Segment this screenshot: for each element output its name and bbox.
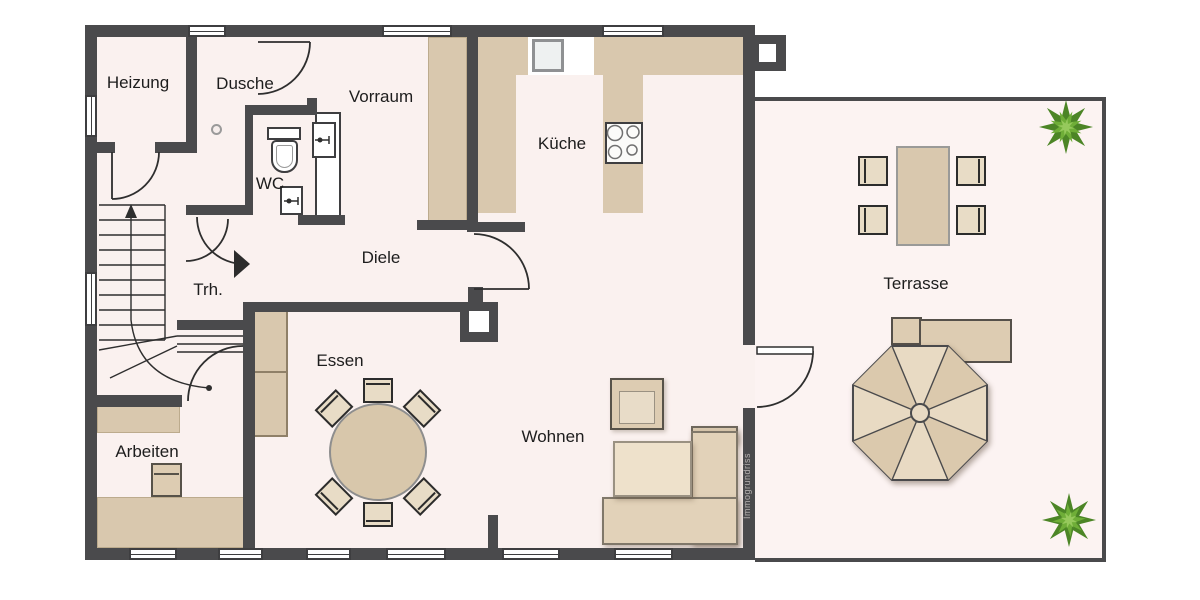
- terrace-chair: [956, 156, 986, 186]
- window: [614, 548, 673, 560]
- window: [386, 548, 446, 560]
- office-shelf: [97, 403, 180, 433]
- terrace-table: [896, 146, 950, 246]
- terrace-chair: [956, 205, 986, 235]
- watermark: Immogrundriss: [742, 418, 755, 553]
- dining-table: [329, 403, 427, 501]
- terrace-chair: [858, 205, 888, 235]
- armchair-seat: [619, 391, 655, 424]
- kitchen-counter-left: [478, 75, 516, 213]
- terrace-chair: [858, 156, 888, 186]
- armchair: [610, 378, 664, 430]
- wall: [177, 320, 243, 330]
- wall: [488, 515, 498, 548]
- room-label-dusche: Dusche: [216, 74, 274, 94]
- wall: [97, 142, 115, 153]
- dining-chair: [363, 502, 393, 527]
- sofa-seat: [613, 441, 692, 497]
- room-label-vorraum: Vorraum: [349, 87, 413, 107]
- sofa-bottom: [602, 497, 738, 545]
- room-label-heizung: Heizung: [107, 73, 169, 93]
- window: [218, 548, 263, 560]
- sideboard: [252, 306, 288, 437]
- wall: [245, 302, 460, 312]
- toilet-tank: [267, 127, 301, 140]
- wall: [245, 112, 253, 215]
- lounger: [919, 319, 1012, 363]
- floor-plan: Heizung Dusche Vorraum WC Küche Diele Tr…: [0, 0, 1200, 600]
- stove: [605, 122, 643, 164]
- window: [502, 548, 560, 560]
- wall: [186, 205, 245, 215]
- office-desk: [97, 497, 245, 548]
- lounger-small: [891, 317, 922, 345]
- washbasin-top: [312, 122, 336, 158]
- window: [85, 95, 97, 137]
- toilet-bowl: [271, 140, 298, 173]
- room-label-wc: WC: [256, 174, 284, 194]
- wall: [467, 37, 478, 232]
- dining-chair: [363, 378, 393, 403]
- room-label-arbeiten: Arbeiten: [115, 442, 178, 462]
- window: [306, 548, 351, 560]
- window: [85, 272, 97, 326]
- wall: [477, 222, 525, 232]
- kitchen-counter-top: [478, 37, 743, 75]
- wall: [243, 302, 255, 548]
- room-label-kueche: Küche: [538, 134, 586, 154]
- room-label-trh: Trh.: [193, 280, 223, 300]
- chimney-diele-flue: [469, 311, 489, 332]
- room-label-essen: Essen: [316, 351, 363, 371]
- wall: [186, 37, 197, 143]
- wall: [245, 105, 317, 115]
- wall: [155, 142, 197, 153]
- shower-drain: [211, 124, 222, 135]
- wall: [743, 25, 755, 345]
- window: [188, 25, 226, 37]
- room-label-wohnen: Wohnen: [521, 427, 584, 447]
- wall: [417, 220, 467, 230]
- wall: [298, 215, 345, 225]
- office-chair: [151, 463, 182, 497]
- kitchen-sink: [532, 39, 564, 72]
- wardrobe: [428, 37, 467, 221]
- window: [382, 25, 452, 37]
- wall: [97, 395, 182, 407]
- window: [129, 548, 177, 560]
- room-label-terrasse: Terrasse: [883, 274, 948, 294]
- room-label-diele: Diele: [362, 248, 401, 268]
- window: [602, 25, 664, 37]
- chimney-flue: [759, 44, 776, 62]
